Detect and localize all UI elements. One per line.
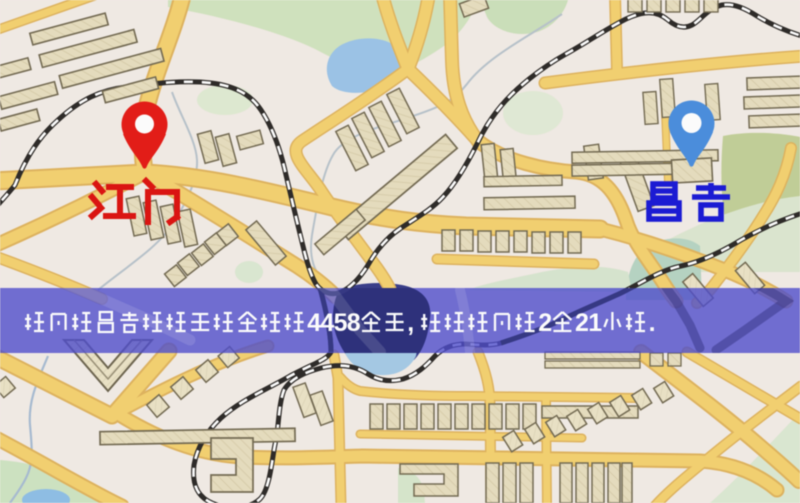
svg-text:,: , [407,309,414,337]
svg-text:4: 4 [307,309,321,337]
svg-text:8: 8 [347,309,361,337]
svg-text:.: . [649,309,656,337]
svg-text:2: 2 [575,309,589,337]
svg-text:1: 1 [588,309,602,337]
svg-text:2: 2 [538,309,552,337]
svg-text:5: 5 [334,309,348,337]
svg-text:4: 4 [320,309,334,337]
